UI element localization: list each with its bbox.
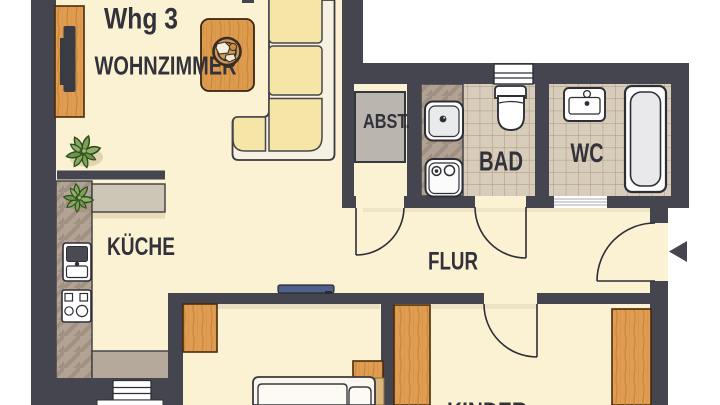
- svg-text:WC: WC: [571, 138, 604, 168]
- svg-text:BAD: BAD: [479, 146, 523, 177]
- svg-text:FLUR: FLUR: [428, 248, 478, 276]
- svg-text:KINDER: KINDER: [447, 397, 527, 405]
- svg-text:ABST.: ABST.: [363, 111, 410, 133]
- svg-text:KÜCHE: KÜCHE: [107, 232, 175, 261]
- svg-text:Whg 3: Whg 3: [104, 3, 178, 36]
